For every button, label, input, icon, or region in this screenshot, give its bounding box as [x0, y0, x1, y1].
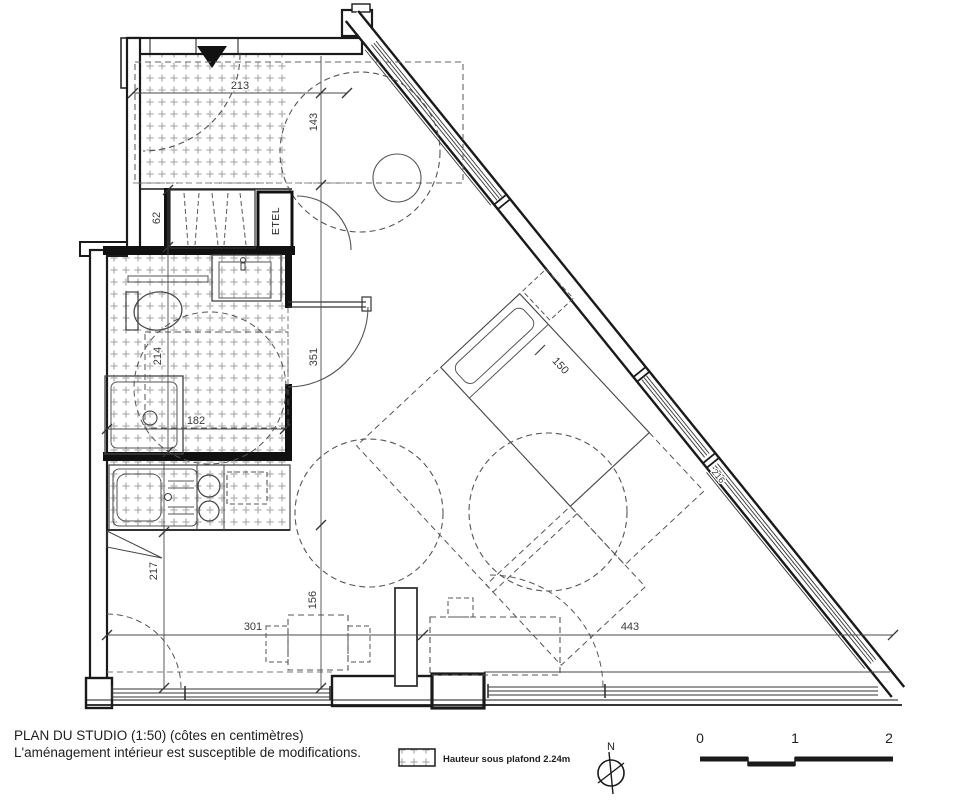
- plan-title: PLAN DU STUDIO (1:50) (côtes en centimèt…: [14, 728, 304, 743]
- entry-hatch: [133, 54, 290, 183]
- scale-1: 1: [791, 730, 799, 746]
- bed-outline: [441, 294, 650, 507]
- bottom-window-1: [112, 686, 330, 700]
- bathroom-right-wall-a: [285, 250, 292, 308]
- scale-0: 0: [696, 730, 704, 746]
- bed-width-label: 150: [550, 355, 571, 377]
- turning-circle-2: [469, 433, 627, 591]
- dim-214: 214: [152, 347, 164, 365]
- north-label: N: [607, 741, 615, 753]
- diagonal-inner-face: [346, 21, 892, 697]
- wardrobe-dashed: [570, 433, 704, 565]
- bottom-wall: [86, 672, 902, 708]
- etel-label: ETEL: [270, 207, 282, 235]
- left-wall-lower: [90, 250, 107, 680]
- dim-62: 62: [151, 212, 163, 224]
- chair-left-dashed: [266, 626, 288, 662]
- dim-217: 217: [148, 562, 160, 580]
- diagonal-outer-face: [358, 11, 904, 687]
- bottom-window-2: [488, 684, 878, 698]
- dim-182: 182: [187, 415, 205, 427]
- window-glazing-2: [642, 376, 709, 458]
- closet: [170, 190, 255, 248]
- scale-bar: 0 1 2: [696, 730, 893, 766]
- bottom-left-pier: [86, 678, 112, 708]
- column: [395, 588, 417, 686]
- dim-213: 213: [231, 80, 249, 92]
- footer: PLAN DU STUDIO (1:50) (côtes en centimèt…: [14, 728, 893, 794]
- dim-156: 156: [307, 591, 319, 609]
- dim-301: 301: [244, 621, 262, 633]
- bottom-pier: [432, 674, 484, 708]
- closet-partition: [164, 188, 170, 250]
- desk-chair-dashed: [448, 598, 473, 617]
- floor-plan-svg: 216: [0, 0, 964, 800]
- diagonal-facade: 216: [346, 11, 904, 697]
- legend-hatch-swatch: [399, 749, 435, 766]
- turning-circle-1: [295, 439, 443, 587]
- dim-443: 443: [621, 621, 639, 633]
- bed-clearance-rect: [357, 367, 578, 592]
- legend-label: Hauteur sous plafond 2.24m: [443, 754, 570, 765]
- pendant-circle: [373, 154, 421, 202]
- side-clearance-rect: [486, 506, 645, 665]
- chair-right-dashed: [348, 626, 370, 662]
- door-frame-stop: [362, 297, 371, 311]
- scale-2: 2: [885, 730, 893, 746]
- top-wall: [128, 38, 362, 54]
- dim-143: 143: [308, 113, 320, 131]
- window-swing-right: [490, 575, 603, 688]
- north-compass: N: [598, 741, 624, 794]
- closet-area: ETEL: [170, 190, 351, 250]
- floor-plan-page: 216: [0, 0, 964, 800]
- left-wall-upper: [127, 38, 140, 250]
- bathroom-door-swing: [288, 307, 368, 387]
- dim-351: 351: [308, 348, 320, 366]
- closet-rail-lines: [184, 193, 246, 245]
- legend: Hauteur sous plafond 2.24m: [399, 749, 570, 766]
- table-dashed: [288, 615, 348, 670]
- plan-subtitle: L'aménagement intérieur est susceptible …: [14, 745, 361, 760]
- top-corner-notch: [352, 4, 370, 12]
- desk-dashed: [430, 617, 560, 675]
- kitchen-door-leaf: [107, 531, 162, 558]
- kitchen-hatch: [107, 460, 290, 530]
- window-swing-left: [107, 614, 181, 688]
